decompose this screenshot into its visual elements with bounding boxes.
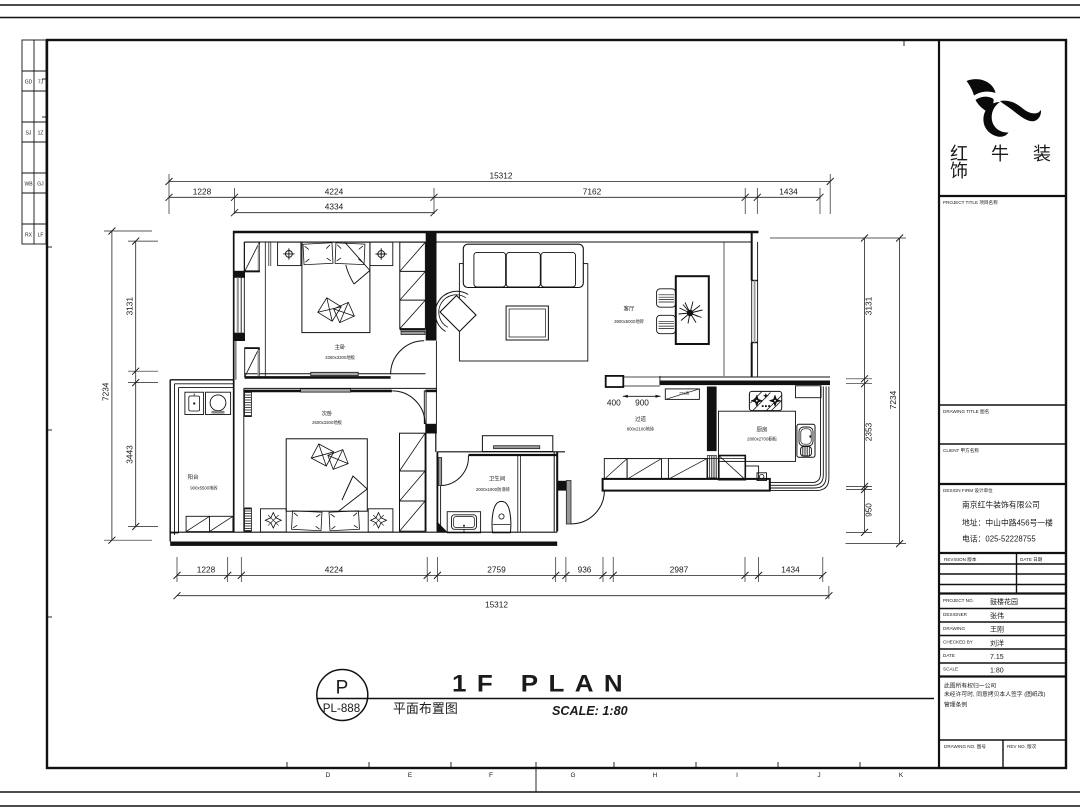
svg-text:1:80: 1:80 [990, 668, 1004, 675]
svg-text:1228: 1228 [197, 564, 216, 574]
svg-text:DESIGNER: DESIGNER [943, 612, 968, 617]
svg-text:900: 900 [635, 398, 649, 408]
svg-text:4224: 4224 [325, 186, 344, 196]
svg-text:3900x5000地砖: 3900x5000地砖 [614, 318, 645, 325]
svg-text:15312: 15312 [489, 171, 512, 181]
svg-text:I: I [736, 772, 738, 779]
svg-text:刘洋: 刘洋 [990, 639, 1004, 648]
svg-text:E: E [408, 772, 413, 779]
svg-text:2353: 2353 [864, 422, 874, 441]
svg-text:装: 装 [1033, 144, 1051, 164]
svg-text:F: F [489, 772, 493, 779]
svg-text:SCALE: SCALE [943, 667, 958, 672]
svg-text:1Z: 1Z [38, 131, 44, 137]
svg-text:PROJECT NO.: PROJECT NO. [943, 598, 974, 603]
svg-text:LF: LF [38, 233, 44, 239]
svg-text:客厅: 客厅 [623, 305, 635, 313]
svg-text:电话：025-52228755: 电话：025-52228755 [962, 534, 1036, 544]
svg-text:3300x3300地板: 3300x3300地板 [325, 354, 356, 361]
svg-text:厨房: 厨房 [756, 426, 768, 434]
svg-text:3131: 3131 [864, 296, 874, 315]
svg-text:7234: 7234 [888, 390, 898, 409]
svg-text:DESIGN FIRM 设计单位: DESIGN FIRM 设计单位 [943, 487, 993, 494]
svg-text:阳台: 阳台 [187, 473, 199, 481]
svg-text:王刚: 王刚 [990, 625, 1004, 634]
svg-text:2987: 2987 [670, 564, 689, 574]
svg-text:地址：中山中路456号一楼: 地址：中山中路456号一楼 [962, 518, 1053, 528]
svg-text:平面布置图: 平面布置图 [393, 701, 458, 716]
svg-text:4334: 4334 [325, 202, 344, 212]
svg-text:7J: 7J [38, 80, 44, 86]
svg-text:2759: 2759 [487, 564, 506, 574]
svg-text:饰: 饰 [950, 161, 968, 181]
svg-text:此图所有权归一公司: 此图所有权归一公司 [944, 682, 996, 690]
svg-text:7234: 7234 [101, 382, 111, 401]
svg-text:PL-888: PL-888 [323, 702, 360, 715]
svg-text:卫生间: 卫生间 [489, 475, 506, 483]
svg-text:GJ: GJ [37, 182, 44, 188]
svg-text:1434: 1434 [781, 564, 800, 574]
svg-text:800x2100地砖: 800x2100地砖 [627, 426, 655, 433]
svg-text:管理条例: 管理条例 [944, 701, 967, 709]
svg-text:鼓楼花园: 鼓楼花园 [990, 597, 1018, 606]
svg-text:H: H [653, 772, 658, 779]
svg-text:1228: 1228 [193, 186, 212, 196]
svg-text:4224: 4224 [325, 564, 344, 574]
svg-text:1434: 1434 [779, 186, 798, 196]
svg-text:SJ: SJ [26, 131, 32, 137]
svg-text:P: P [336, 678, 349, 699]
svg-text:DRAWING TITLE 图名: DRAWING TITLE 图名 [943, 408, 989, 415]
svg-text:750高: 750高 [679, 391, 689, 396]
svg-text:未经许可时, 同意拷贝本人签字 (图纸改): 未经许可时, 同意拷贝本人签字 (图纸改) [944, 690, 1046, 698]
svg-text:3131: 3131 [125, 297, 135, 316]
svg-text:G: G [570, 772, 575, 779]
svg-text:REVISION 版本: REVISION 版本 [944, 556, 977, 563]
svg-text:主卧: 主卧 [334, 343, 346, 351]
svg-text:15312: 15312 [485, 600, 508, 610]
svg-text:2800x2700橱柜: 2800x2700橱柜 [747, 436, 778, 443]
svg-text:RX: RX [25, 233, 33, 239]
svg-text:次卧: 次卧 [321, 410, 333, 418]
svg-text:7.15: 7.15 [990, 654, 1004, 661]
svg-text:DATE: DATE [943, 653, 955, 658]
svg-text:SCALE: 1:80: SCALE: 1:80 [552, 704, 628, 718]
svg-text:WB: WB [24, 182, 33, 188]
svg-text:K: K [899, 772, 904, 779]
svg-text:CLIENT 甲方名称: CLIENT 甲方名称 [943, 447, 979, 454]
svg-text:DRAWING: DRAWING [943, 626, 965, 631]
svg-text:PROJECT TITLE 项目名称: PROJECT TITLE 项目名称 [943, 199, 998, 206]
svg-text:3443: 3443 [125, 445, 135, 464]
svg-text:900x5500地砖: 900x5500地砖 [190, 485, 218, 492]
svg-text:2600x3300地板: 2600x3300地板 [312, 419, 343, 426]
svg-text:7162: 7162 [583, 186, 602, 196]
svg-text:GD: GD [25, 80, 33, 86]
svg-text:张伟: 张伟 [990, 611, 1004, 620]
svg-text:400: 400 [607, 398, 621, 408]
svg-text:950: 950 [864, 503, 874, 517]
svg-text:936: 936 [578, 564, 592, 574]
svg-text:过道: 过道 [635, 415, 647, 423]
svg-text:1F PLAN: 1F PLAN [452, 670, 633, 697]
svg-text:REV NO. 版次: REV NO. 版次 [1007, 743, 1037, 750]
svg-text:CHECKED BY: CHECKED BY [943, 640, 973, 645]
svg-text:牛: 牛 [991, 144, 1009, 164]
svg-text:D: D [326, 772, 331, 779]
svg-text:南京红牛装饰有限公司: 南京红牛装饰有限公司 [962, 500, 1040, 510]
svg-text:J: J [817, 772, 820, 779]
svg-text:2000x1900防滑砖: 2000x1900防滑砖 [476, 486, 511, 493]
